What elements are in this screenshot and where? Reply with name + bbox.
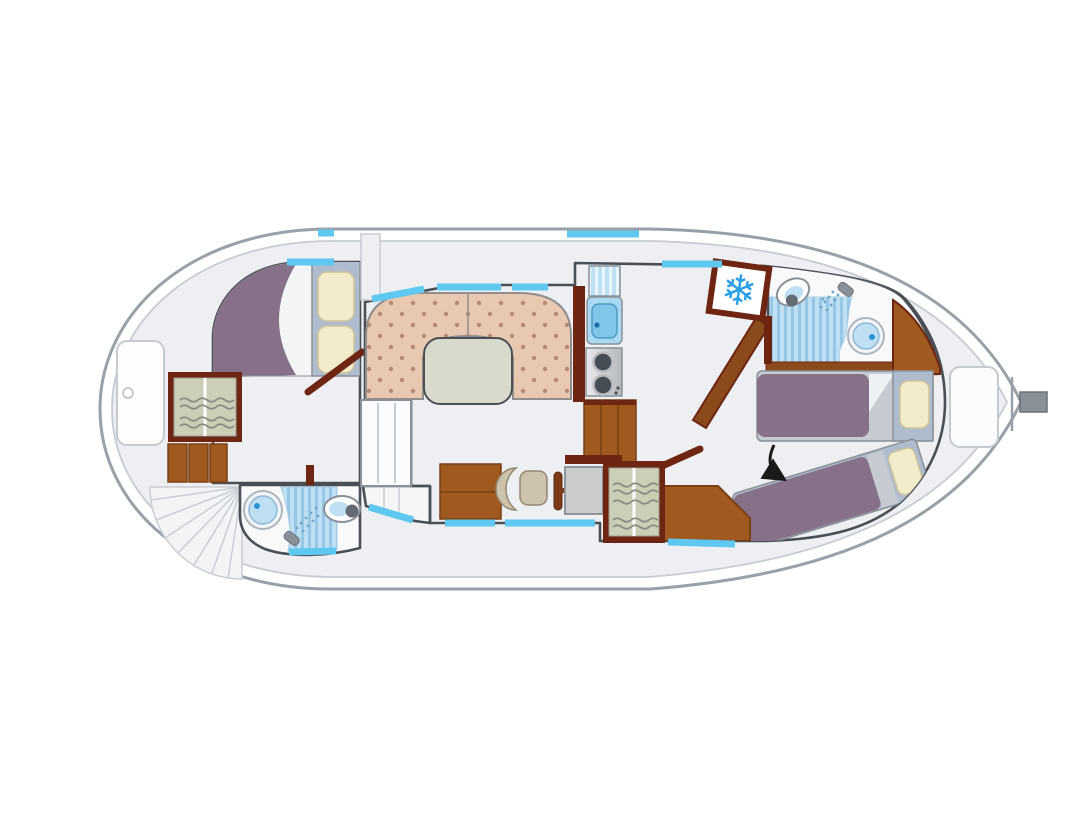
forward-wardrobe [168,372,242,442]
shower [281,487,337,553]
bathroom-door-jamb [306,465,314,485]
draining-board [589,266,620,296]
galley-counter [584,400,636,462]
pillow [900,381,929,428]
bow-steps [150,487,242,579]
aft-bathroom [766,265,940,374]
galley-sink [587,297,622,344]
stern-bench [950,367,998,447]
bow-hatch-handle [123,388,133,398]
rudder [1020,392,1047,412]
aft-shower [770,297,852,363]
helm-console [565,467,603,514]
window [289,551,336,552]
aft-single-bed [757,371,933,441]
galley-wall [573,286,585,402]
forward-drawers [168,444,227,482]
helm-wardrobe [603,461,665,543]
salon-table [424,338,512,404]
stove [586,348,622,396]
helm-cabinet [440,464,501,519]
fridge: ❄ [709,261,769,318]
window [668,542,735,544]
washbasin [244,491,282,529]
sideboard [361,400,411,486]
toilet [324,496,360,522]
pillow [318,272,354,321]
roof-pillar [361,234,380,300]
aft-door-jamb [764,316,772,364]
snowflake-icon: ❄ [718,264,760,317]
aft-washbasin [848,318,884,354]
boat-floor-plan: ❄ [0,0,1092,819]
floor-plan-canvas: ❄ [0,0,1092,819]
